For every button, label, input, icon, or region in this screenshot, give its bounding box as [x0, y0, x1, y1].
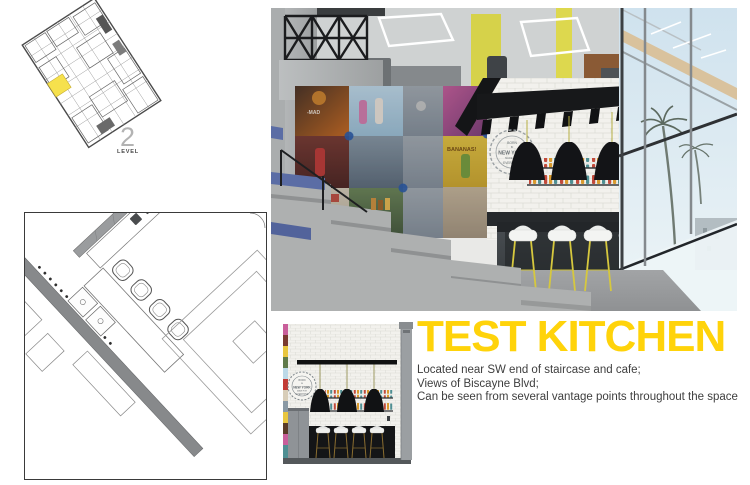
- elevation-floor: [283, 458, 411, 464]
- test-kitchen-render: BANANAS! -MAD BOR: [271, 8, 737, 311]
- elevation-pendant-lights: [310, 389, 384, 412]
- title-block: TEST KITCHEN Located near SW end of stai…: [417, 315, 750, 405]
- svg-text:BORN: BORN: [299, 379, 306, 382]
- key-plan-drawing: 2 LEVEL: [16, 0, 168, 158]
- description-line-1: Located near SW end of staircase and caf…: [417, 364, 750, 378]
- elevation-stamp-logo: BORN IN NEW YORK MADE FOR EVERYONE: [288, 372, 316, 400]
- svg-text:EVERYONE: EVERYONE: [296, 394, 309, 396]
- svg-text:IN: IN: [511, 145, 514, 149]
- description-line-2: Views of Biscayne Blvd;: [417, 378, 750, 392]
- pendant-lights: [509, 112, 630, 180]
- level-label: LEVEL: [117, 149, 139, 155]
- elevation-column: [401, 324, 412, 460]
- svg-text:BORN: BORN: [507, 141, 517, 145]
- presentation-page: 2 LEVEL: [0, 0, 750, 485]
- elevation-beam: [297, 360, 397, 365]
- floor-plan-drawing: [24, 212, 267, 480]
- page-title: TEST KITCHEN: [417, 315, 750, 359]
- level-2-key-plan: 2 LEVEL: [16, 0, 168, 158]
- description: Located near SW end of staircase and caf…: [417, 364, 750, 405]
- window-wall: [619, 8, 737, 311]
- render-image: BANANAS! -MAD BOR: [271, 8, 737, 311]
- svg-text:NEW YORK: NEW YORK: [293, 386, 311, 390]
- elevation-drawing: BORN IN NEW YORK MADE FOR EVERYONE: [283, 322, 416, 470]
- enlarged-floor-plan: [24, 212, 267, 480]
- svg-text:MADE FOR: MADE FOR: [297, 390, 308, 393]
- elevation-poster-strip: [283, 324, 288, 460]
- level-number: 2: [120, 122, 135, 152]
- test-kitchen-elevation: BORN IN NEW YORK MADE FOR EVERYONE: [283, 322, 416, 470]
- description-line-3: Can be seen from several vantage points …: [417, 391, 750, 405]
